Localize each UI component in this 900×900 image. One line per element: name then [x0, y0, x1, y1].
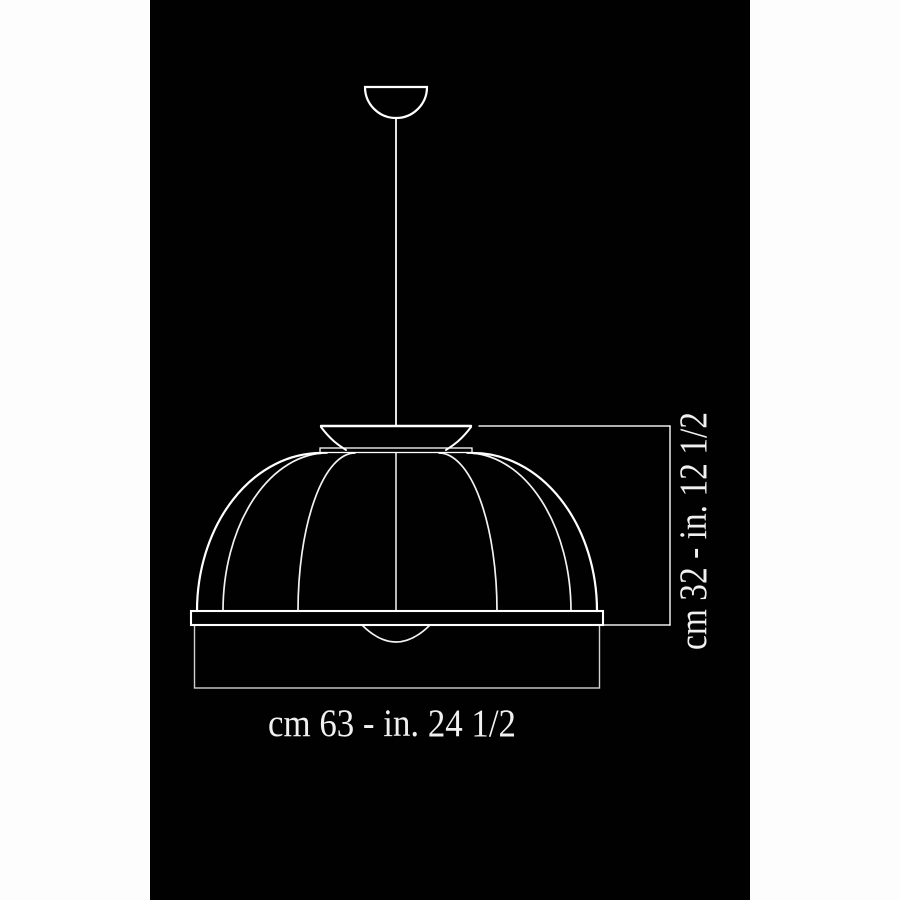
page-canvas: cm 63 - in. 24 1/2 cm 32 - in. 12 1/2 [0, 0, 900, 900]
lamp-dimension-drawing: cm 63 - in. 24 1/2 cm 32 - in. 12 1/2 [0, 0, 900, 900]
black-panel [150, 0, 750, 900]
width-dimension-label: cm 63 - in. 24 1/2 [268, 702, 516, 745]
height-dimension-label: cm 32 - in. 12 1/2 [672, 412, 715, 650]
